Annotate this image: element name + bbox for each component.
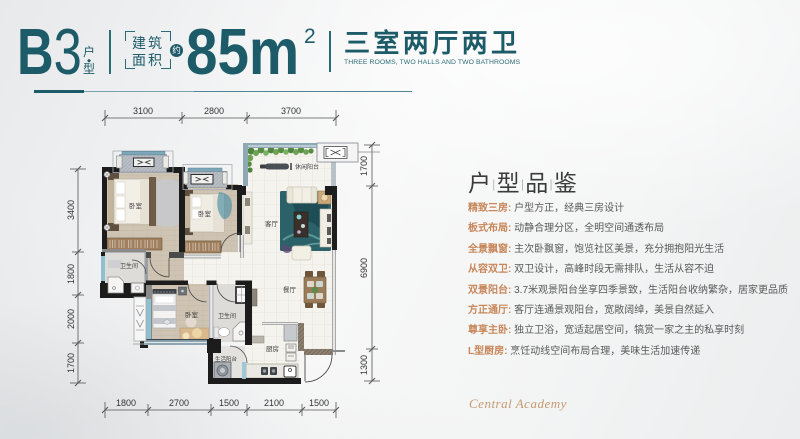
svg-text:1800: 1800 [116,398,136,408]
svg-text:1500: 1500 [309,398,329,408]
svg-text:休闲阳台: 休闲阳台 [295,163,319,171]
svg-text:2000: 2000 [66,309,76,329]
svg-text:卧室: 卧室 [185,310,199,319]
svg-text:2700: 2700 [169,398,189,408]
svg-text:3100: 3100 [133,106,153,116]
svg-text:2100: 2100 [264,398,284,408]
svg-text:1700: 1700 [359,156,369,176]
svg-text:客厅: 客厅 [265,219,279,228]
svg-text:6900: 6900 [359,258,369,278]
svg-text:生活阳台: 生活阳台 [215,355,238,363]
svg-text:1800: 1800 [66,264,76,284]
svg-text:餐厅: 餐厅 [283,285,297,294]
svg-text:厨房: 厨房 [266,344,279,353]
svg-text:卧室: 卧室 [198,209,212,218]
svg-text:卫生间: 卫生间 [218,312,236,320]
svg-text:卧室: 卧室 [129,201,143,210]
svg-text:3400: 3400 [66,200,76,220]
svg-text:3700: 3700 [281,106,301,116]
svg-text:2800: 2800 [204,106,224,116]
svg-text:1300: 1300 [359,355,369,375]
svg-text:卫生间: 卫生间 [120,262,138,270]
svg-text:1500: 1500 [219,398,239,408]
svg-text:1700: 1700 [66,353,76,373]
